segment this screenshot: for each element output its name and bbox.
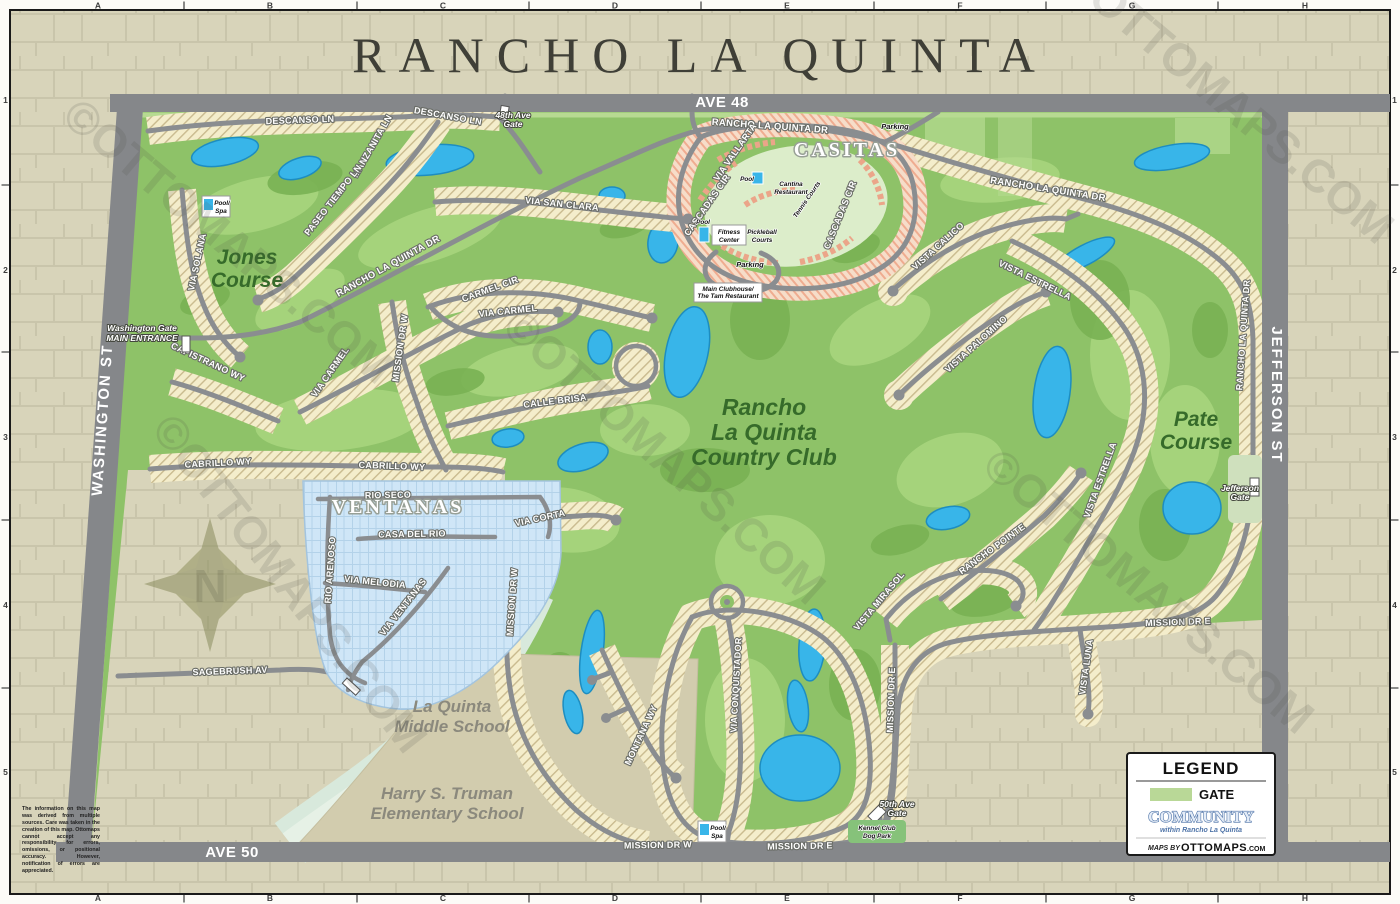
legend-brand-tld: .COM bbox=[1247, 846, 1265, 853]
jefferson-st-road bbox=[1262, 94, 1288, 862]
fitness-pool-icon bbox=[699, 227, 709, 242]
parking-label-1: Parking bbox=[881, 122, 909, 131]
ventanas-label: VENTANAS bbox=[332, 496, 465, 518]
jefferson-gate-label-2: Gate bbox=[1231, 492, 1250, 502]
south-pool-spa-label-2: Spa bbox=[711, 833, 723, 840]
south-pool-icon bbox=[700, 824, 709, 835]
svg-text:5: 5 bbox=[1392, 767, 1397, 777]
fitness-label-1: Fitness bbox=[718, 229, 741, 236]
svg-text:C: C bbox=[440, 893, 446, 903]
jefferson-st-label: JEFFERSON ST bbox=[1268, 326, 1285, 463]
svg-text:3: 3 bbox=[1392, 432, 1397, 442]
legend-title: LEGEND bbox=[1163, 759, 1240, 778]
elementary-school-label-2: Elementary School bbox=[370, 804, 524, 823]
cantina-pool-label: Pool bbox=[740, 176, 754, 183]
map-title: RANCHO LA QUINTA bbox=[352, 27, 1048, 83]
legend-gate-label: GATE bbox=[1199, 787, 1234, 802]
legend-brand: OTTOMAPS bbox=[1181, 842, 1247, 854]
south-pool-spa-label-1: Pool/ bbox=[710, 825, 727, 832]
svg-text:C: C bbox=[440, 1, 446, 11]
svg-text:B: B bbox=[267, 1, 273, 11]
svg-text:B: B bbox=[267, 893, 273, 903]
cantina-label-2: Restaurant bbox=[774, 189, 808, 196]
legend-gate-swatch bbox=[1150, 788, 1192, 801]
legend-maps-by: MAPS BY bbox=[1148, 845, 1181, 852]
fitness-pool-label: Pool bbox=[696, 219, 710, 226]
svg-text:1: 1 bbox=[1392, 95, 1397, 105]
svg-text:H: H bbox=[1302, 893, 1308, 903]
svg-text:D: D bbox=[612, 893, 618, 903]
svg-text:D: D bbox=[612, 1, 618, 11]
svg-text:1: 1 bbox=[3, 95, 8, 105]
pickleball-label-1: Pickleball bbox=[747, 229, 777, 236]
washington-gate-label-2: MAIN ENTRANCE bbox=[106, 333, 178, 343]
kennel-club-label-1: Kennel Club bbox=[858, 825, 895, 832]
svg-text:F: F bbox=[957, 1, 962, 11]
svg-text:A: A bbox=[95, 893, 101, 903]
map-page: RANCHO LA QUINTA bbox=[0, 0, 1400, 904]
street-label-casa-del-rio: CASA DEL RIO bbox=[378, 528, 446, 539]
parking-label-2: Parking bbox=[736, 260, 764, 269]
48th-ave-gate-label-2: Gate bbox=[504, 119, 523, 129]
clubhouse-label-2: The Tam Restaurant bbox=[697, 293, 759, 300]
pickleball-label-2: Courts bbox=[752, 237, 773, 244]
elementary-school-label-1: Harry S. Truman bbox=[381, 784, 513, 803]
legend-community-sub: within Rancho La Quinta bbox=[1160, 827, 1242, 834]
svg-text:H: H bbox=[1302, 1, 1308, 11]
pate-course-label-1: Pate bbox=[1174, 408, 1219, 431]
legend: LEGEND GATE COMMUNITY within Rancho La Q… bbox=[1127, 753, 1275, 855]
svg-text:3: 3 bbox=[3, 432, 8, 442]
country-club-label-2: La Quinta bbox=[711, 419, 817, 445]
casitas-label: CASITAS bbox=[794, 139, 900, 161]
washington-gate-label-1: Washington Gate bbox=[107, 323, 177, 333]
ave-48-label: AVE 48 bbox=[695, 94, 749, 111]
kennel-club-label-2: Dog Park bbox=[863, 833, 892, 840]
50th-ave-gate-label-2: Gate bbox=[888, 808, 907, 818]
pate-course-label-2: Course bbox=[1160, 431, 1233, 454]
svg-text:4: 4 bbox=[3, 600, 8, 610]
country-club-label-1: Rancho bbox=[722, 394, 806, 420]
svg-text:G: G bbox=[1129, 893, 1136, 903]
svg-text:4: 4 bbox=[1392, 600, 1397, 610]
cantina-label-1: Cantina bbox=[779, 181, 803, 188]
svg-text:E: E bbox=[784, 1, 790, 11]
clubhouse-label-1: Main Clubhouse/ bbox=[702, 286, 754, 293]
map-canvas: RANCHO LA QUINTA bbox=[0, 0, 1400, 904]
washington-gate-icon bbox=[182, 336, 190, 352]
svg-text:G: G bbox=[1129, 1, 1136, 11]
svg-text:2: 2 bbox=[3, 265, 8, 275]
fitness-label-2: Center bbox=[719, 237, 740, 244]
legend-community-label: COMMUNITY bbox=[1148, 809, 1254, 826]
street-label-mission-w-3: MISSION DR W bbox=[624, 839, 692, 850]
disclaimer-text: The information on this map was derived … bbox=[22, 806, 100, 875]
svg-text:F: F bbox=[957, 893, 962, 903]
svg-text:5: 5 bbox=[3, 767, 8, 777]
street-label-mission-e-3: MISSION DR E bbox=[767, 840, 833, 851]
ave-50-label: AVE 50 bbox=[205, 844, 259, 861]
compass-n: N bbox=[193, 560, 226, 612]
svg-text:2: 2 bbox=[1392, 265, 1397, 275]
svg-text:E: E bbox=[784, 893, 790, 903]
svg-text:A: A bbox=[95, 1, 101, 11]
